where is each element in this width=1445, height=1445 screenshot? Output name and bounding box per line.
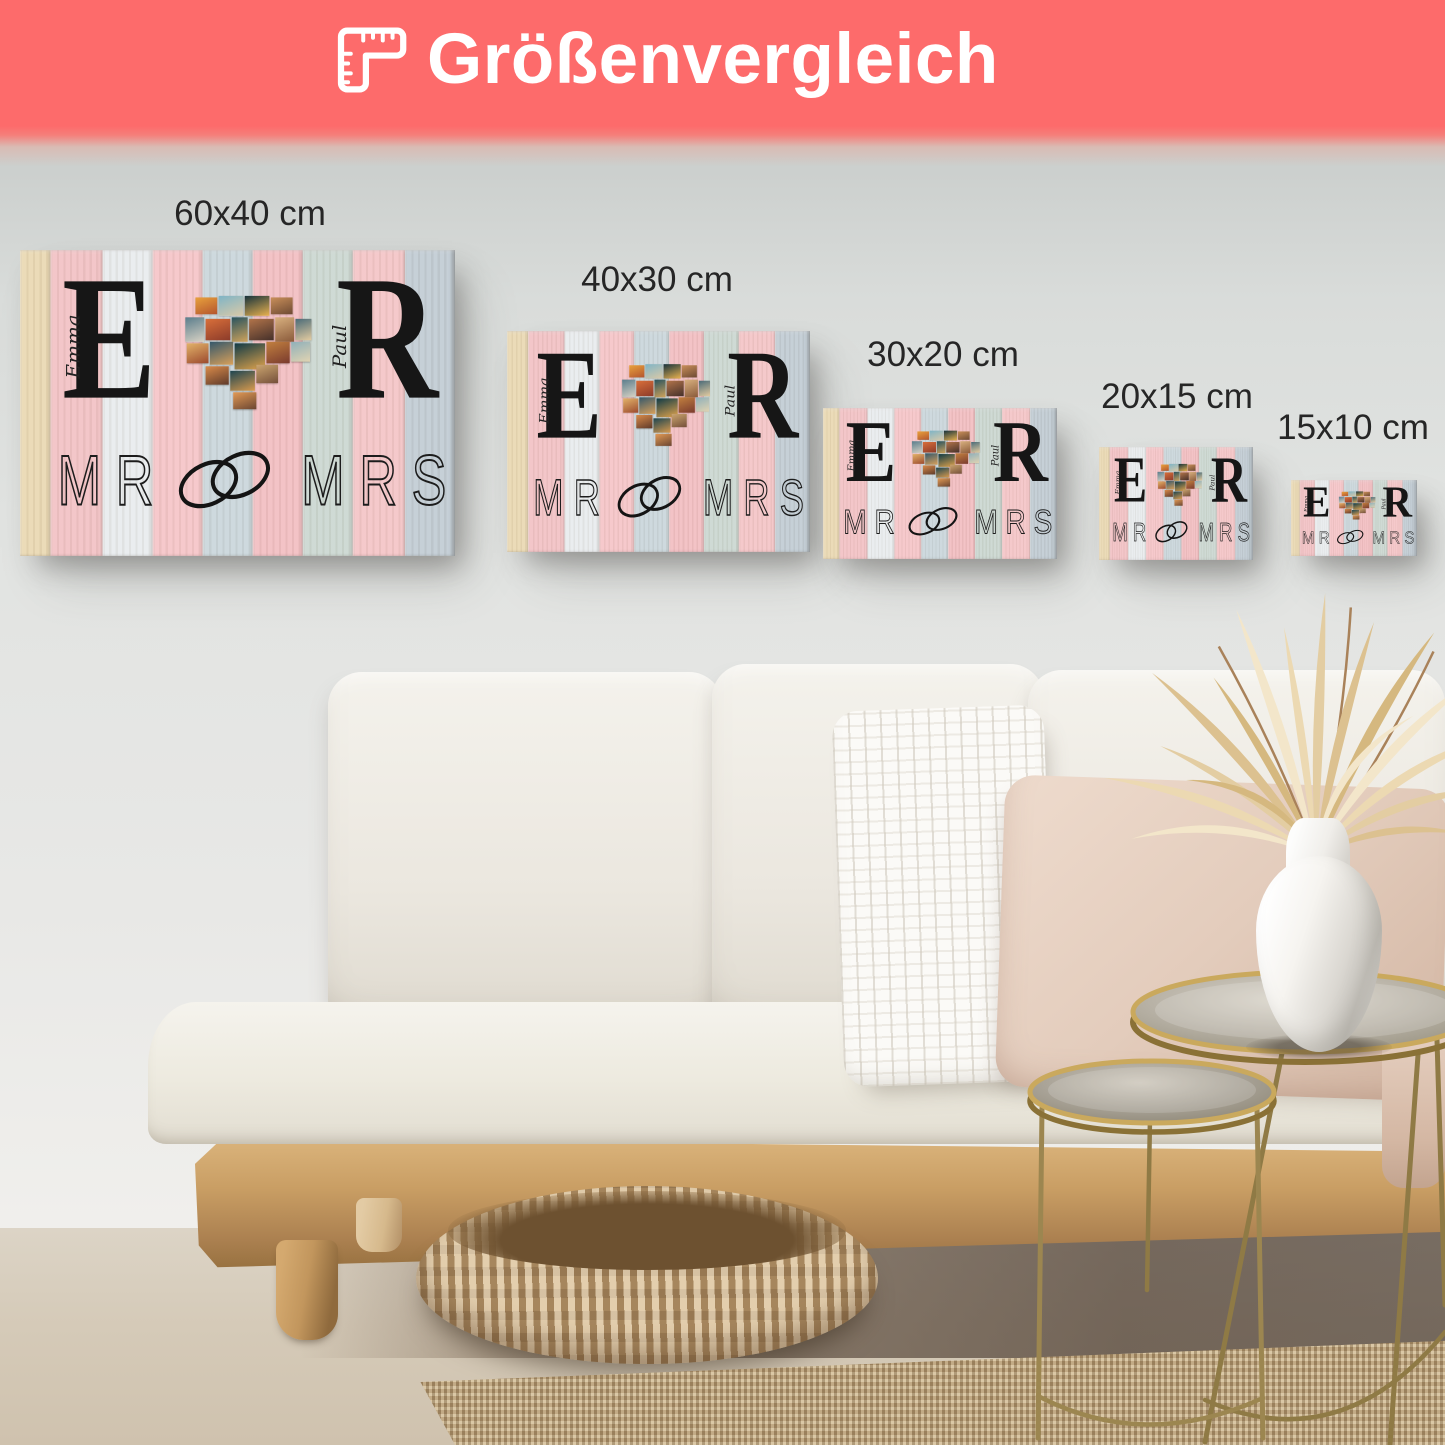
- photo-tile: [245, 296, 270, 316]
- photo-tile: [1158, 481, 1166, 488]
- photo-tile: [655, 434, 671, 446]
- photo-tile: [653, 418, 670, 432]
- wedding-rings-icon: [906, 505, 961, 538]
- photo-tile: [1364, 492, 1370, 496]
- canvas-print-20x15: E R Emma Paul MR MRS: [1099, 447, 1253, 560]
- photo-tile: [946, 442, 959, 453]
- gold-nesting-tables: [1020, 960, 1445, 1445]
- canvas-artwork: E R Emma Paul MR MRS: [1291, 480, 1417, 556]
- photo-tile: [696, 397, 709, 411]
- photo-tile: [685, 380, 698, 398]
- rattan-pouf-top: [448, 1191, 845, 1269]
- photo-tile: [958, 431, 970, 439]
- photo-tile: [629, 365, 644, 377]
- photo-tile: [1345, 497, 1352, 502]
- photo-tile: [1166, 481, 1174, 489]
- photo-tile: [917, 431, 929, 439]
- photo-tile: [1353, 515, 1360, 519]
- size-label-20x15: 20x15 cm: [1101, 377, 1253, 417]
- photo-tile: [930, 431, 943, 441]
- canvas-print-30x20: E R Emma Paul MR MRS: [823, 408, 1057, 559]
- photo-tile: [249, 319, 274, 340]
- photo-tile: [210, 342, 233, 365]
- photo-tile: [622, 380, 635, 398]
- photo-tile: [944, 431, 957, 441]
- mrs-text: MRS: [301, 446, 455, 516]
- sofa-back-cushion-left: [328, 672, 723, 1034]
- photo-tile: [267, 342, 290, 363]
- photo-tile: [1189, 472, 1196, 481]
- photo-tile: [925, 453, 937, 464]
- photo-tile: [232, 317, 248, 341]
- photo-tile: [187, 343, 209, 363]
- photo-tile: [1339, 497, 1344, 503]
- photo-tile: [219, 296, 244, 316]
- photo-tile: [1342, 492, 1348, 496]
- mr-text: MR: [1302, 529, 1334, 546]
- photo-tile: [1359, 509, 1365, 514]
- size-comparison-banner: Größenvergleich: [0, 0, 1445, 170]
- mrs-text: MRS: [703, 472, 810, 523]
- canvas-artwork: E R Emma Paul MR MRS: [507, 331, 810, 552]
- canvas-artwork: E R Emma Paul MR MRS: [20, 250, 455, 556]
- photo-tile: [672, 414, 687, 427]
- photo-tile: [682, 365, 697, 377]
- wedding-rings-icon: [1153, 519, 1189, 544]
- photo-tile: [256, 365, 278, 383]
- photo-tile: [1346, 503, 1353, 509]
- photo-tile: [1345, 509, 1352, 514]
- nesting-table-small: [1030, 1061, 1274, 1438]
- photo-tile: [1370, 503, 1375, 508]
- photo-tile: [969, 453, 979, 463]
- photo-tile: [679, 397, 695, 412]
- photo-tile: [960, 441, 970, 453]
- photo-tile: [913, 454, 925, 464]
- sofa-leg-back: [356, 1198, 402, 1252]
- photo-tile: [1371, 497, 1376, 502]
- photo-tile: [1180, 472, 1189, 480]
- canvas-print-60x40: E R Emma Paul MR MRS: [20, 250, 455, 556]
- photo-tile: [271, 297, 293, 314]
- photo-tile: [1356, 491, 1363, 496]
- photo-tile: [938, 478, 950, 486]
- photo-tile: [1179, 464, 1188, 471]
- photo-tile: [1195, 481, 1202, 488]
- photo-tile: [206, 366, 229, 384]
- wedding-rings-icon: [174, 446, 277, 513]
- photo-tile: [1362, 503, 1369, 508]
- mrs-text: MRS: [1199, 519, 1253, 545]
- photo-tile: [1339, 503, 1345, 508]
- canvas-artwork: E R Emma Paul MR MRS: [823, 408, 1057, 559]
- photo-tile: [291, 342, 310, 362]
- photo-tile: [937, 441, 946, 453]
- photo-tile: [1188, 465, 1196, 471]
- photo-tile: [185, 317, 204, 341]
- canvas-print-40x30: E R Emma Paul MR MRS: [507, 331, 810, 552]
- photo-tile: [1169, 464, 1178, 471]
- canvas-print-15x10: E R Emma Paul MR MRS: [1291, 480, 1417, 556]
- photo-tile: [923, 442, 936, 453]
- photo-tile: [936, 468, 949, 478]
- photo-tile: [230, 371, 255, 391]
- mrs-text: MRS: [974, 505, 1057, 540]
- photo-tile: [912, 441, 922, 453]
- size-label-30x20: 30x20 cm: [867, 335, 1019, 375]
- mrs-text: MRS: [1372, 529, 1417, 546]
- mr-text: MR: [58, 446, 168, 516]
- banner-content: Größenvergleich: [333, 18, 999, 102]
- size-label-60x40: 60x40 cm: [174, 194, 326, 234]
- photo-tile: [654, 380, 665, 398]
- sofa-leg-front: [276, 1240, 338, 1340]
- photo-tile: [699, 381, 710, 396]
- photo-tile: [1174, 500, 1182, 506]
- photo-tile: [636, 381, 653, 396]
- photo-tile: [1174, 472, 1180, 481]
- size-label-40x30: 40x30 cm: [581, 260, 733, 300]
- photo-tile: [1173, 492, 1182, 499]
- photo-tile: [971, 442, 980, 453]
- photo-tile: [1161, 465, 1169, 471]
- mr-text: MR: [533, 472, 610, 523]
- canvas-artwork: E R Emma Paul MR MRS: [1099, 447, 1253, 560]
- photo-tile: [667, 381, 684, 396]
- photo-tile: [1352, 497, 1357, 503]
- size-label-15x10: 15x10 cm: [1277, 408, 1429, 448]
- photo-tile: [275, 317, 294, 341]
- photo-tile: [1158, 472, 1165, 481]
- mr-text: MR: [1112, 519, 1151, 545]
- photo-tile: [1165, 472, 1174, 480]
- photo-tile: [956, 453, 968, 464]
- wedding-rings-icon: [614, 472, 686, 521]
- wedding-rings-icon: [1336, 529, 1366, 546]
- photo-tile: [233, 392, 256, 409]
- rattan-pouf: [416, 1186, 878, 1364]
- photo-tile: [1352, 510, 1359, 515]
- photo-tile: [1357, 497, 1364, 502]
- photo-tile: [636, 415, 652, 428]
- photo-tile: [645, 364, 662, 378]
- photo-tile: [1183, 489, 1191, 496]
- photo-tile: [923, 465, 935, 474]
- photo-tile: [1349, 491, 1356, 496]
- mr-text: MR: [843, 505, 902, 540]
- photo-tile: [950, 465, 962, 474]
- photo-tile: [206, 319, 231, 340]
- photo-tile: [639, 397, 655, 414]
- photo-tile: [1186, 481, 1194, 489]
- ruler-icon: [333, 20, 413, 100]
- photo-tile: [1197, 472, 1203, 480]
- size-comparison-image: Größenvergleich 60x40 cm 40x30 cm 30x20 …: [0, 0, 1445, 1445]
- photo-tile: [1165, 490, 1173, 497]
- photo-tile: [623, 398, 638, 412]
- photo-tile: [195, 297, 217, 314]
- photo-tile: [296, 319, 312, 340]
- photo-tile: [664, 364, 681, 378]
- banner-title: Größenvergleich: [427, 18, 999, 102]
